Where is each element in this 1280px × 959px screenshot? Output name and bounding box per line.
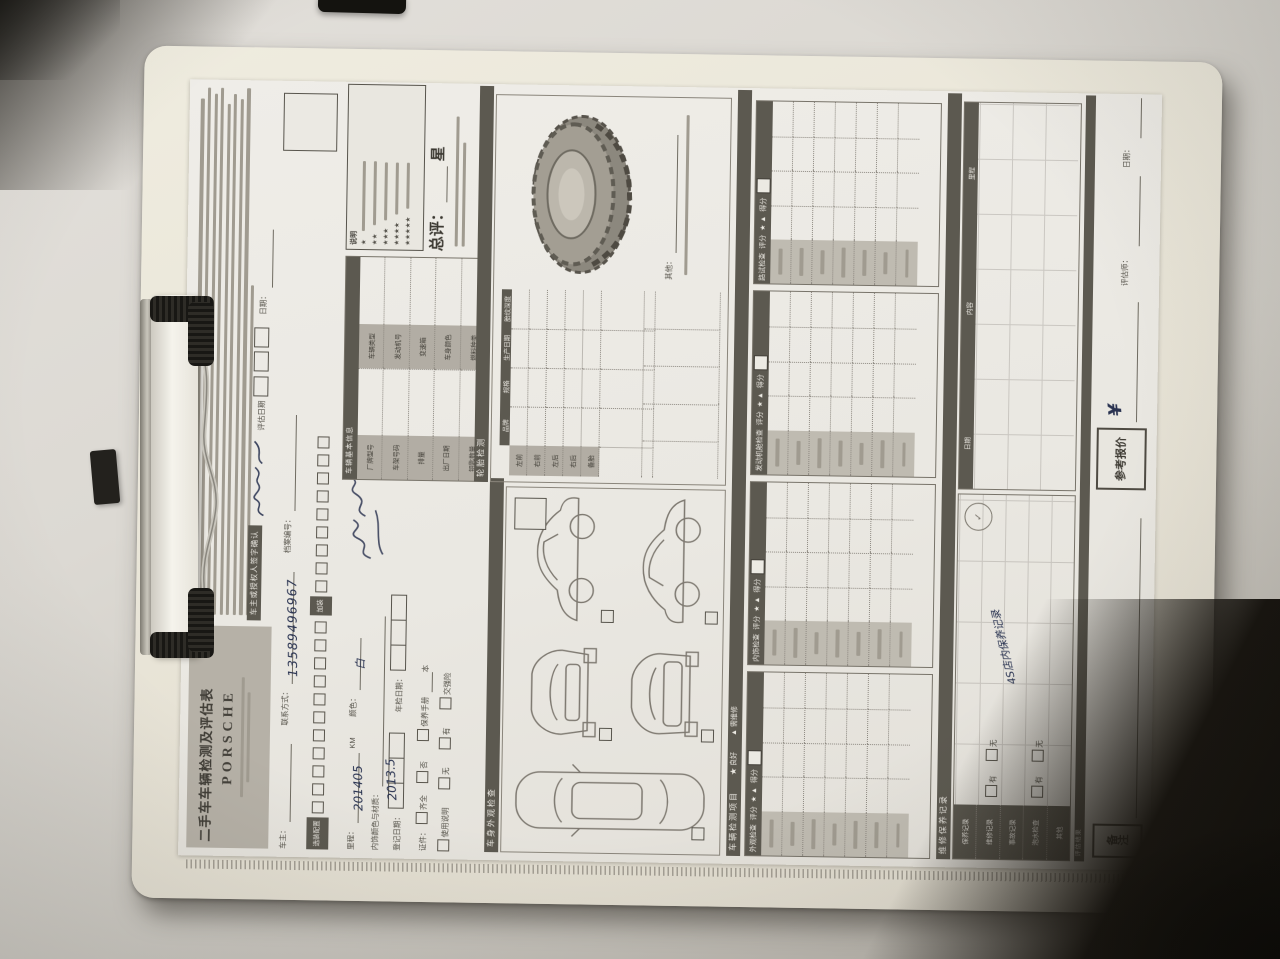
insurance-label: 交强险 (443, 672, 452, 695)
manual-label: 保养手册 (420, 697, 429, 727)
basic-label: 车身颜色 (435, 325, 461, 369)
inspection-table: 发动机舱检查 评分★ ▲ 得分 (750, 291, 939, 478)
signature-handwriting (247, 435, 270, 521)
brand-subline (240, 677, 245, 797)
assessor-field (1130, 176, 1141, 246)
color-field: 白 (351, 638, 362, 690)
handwritten-scrawl (331, 474, 390, 567)
car-rear-view (619, 641, 709, 746)
car-front-view (517, 640, 607, 745)
basic-info-table: 车辆基本信息 厂牌型号 车辆类型 车架号码 发动机号 排量 变速箱 出厂日期 车… (342, 256, 490, 482)
contact-label: 联系方式： (280, 688, 290, 726)
manual-checkbox (417, 729, 429, 741)
assessor-label: 评估师： (1119, 256, 1130, 286)
book-checkbox (437, 839, 449, 851)
view-code-box-right (705, 611, 718, 624)
tire-row: 右后 (563, 446, 581, 476)
mileage-unit: KM (348, 737, 357, 748)
manual-unit: 本 (421, 665, 430, 673)
body-diagram-area (500, 486, 726, 855)
options-label: 选装配置 (306, 817, 328, 849)
inspection-section-title: 路试检查 (757, 253, 767, 281)
desk-shadow-corner2 (1080, 829, 1280, 959)
eval-date-label: 评估日期 (257, 400, 266, 430)
footer-date-field (1131, 98, 1142, 138)
porsche-logo: PORSCHE (219, 626, 238, 848)
docs-full-label: 齐全 (419, 795, 428, 810)
black-object-top-edge (318, 0, 406, 14)
option-checkbox (312, 801, 324, 813)
page-title: 二手车车辆检测及评估表 (186, 625, 218, 847)
basic-label: 车辆类型 (359, 324, 385, 368)
legend-bad: ▲ 需维修 (728, 706, 742, 736)
tire-row: 右前 (527, 446, 545, 476)
docs-full-checkbox (415, 812, 427, 824)
basic-label: 发动机号 (384, 324, 410, 368)
inspection-table: 路试检查 评分★ ▲ 得分 (753, 100, 942, 287)
clip-grip-bottom (150, 588, 214, 658)
tire-other-row: 其他： (658, 110, 693, 280)
car-side-right-view (621, 493, 715, 628)
have-label: 有 (442, 727, 451, 735)
basic-label: 车架号码 (382, 435, 408, 479)
score-box (751, 560, 765, 575)
owner-label: 车主： (278, 826, 287, 849)
contact-field: 13589496967 (283, 571, 295, 683)
quote-box: 参考报价 (1096, 428, 1147, 491)
brand-subline2 (246, 692, 251, 782)
records-grid-col: 里程 (965, 129, 976, 219)
header-empty-box (283, 93, 338, 152)
overall-unit: 星 (430, 146, 447, 161)
owner-field (281, 744, 292, 822)
signature-bar-label: 车主或授权人签字确认 (247, 525, 262, 620)
legend-good: ★ 良好 (727, 752, 741, 775)
basic-label: 排量 (408, 436, 434, 480)
tire-other-label: 其他： (664, 257, 673, 280)
view-code-box-rear (701, 729, 714, 742)
form-header-block: 二手车车辆检测及评估表 PORSCHE (186, 625, 271, 848)
tire-table: 品牌 规格 生产日期 胎纹深度 左前 右前 左后 右后 备胎 (499, 289, 656, 477)
mileage-field: 201405 (349, 753, 360, 823)
mileage-handwriting: 201405 (351, 765, 366, 811)
binder-clip (90, 449, 121, 505)
inspection-bar-title: 车辆检测项目 (726, 791, 741, 851)
tire-row: 备胎 (581, 446, 599, 476)
tire-col: 规格 (500, 367, 511, 406)
docs-label: 证件： (418, 828, 427, 851)
diagram-legend-box (514, 497, 546, 529)
basic-label: 出厂日期 (433, 436, 459, 480)
basic-label: 变速箱 (409, 325, 435, 369)
color-handwriting: 白 (354, 658, 367, 669)
view-code-box-front (599, 728, 612, 741)
footer-date-label: 日期： (1121, 145, 1132, 168)
eval-date-box (253, 376, 268, 396)
score-box (748, 750, 762, 765)
eval-date-box (254, 327, 269, 347)
file-number-field (285, 415, 297, 511)
tire-row: 左后 (545, 446, 563, 476)
none-label: 无 (441, 767, 450, 775)
none-checkbox (438, 777, 450, 789)
tire-row: 左前 (509, 445, 527, 475)
options-label2: 加装 (310, 596, 332, 615)
mileage-label: 里程： (346, 827, 355, 850)
inspection-section-title: 外观检查 (748, 824, 758, 852)
insp-date-boxes (390, 594, 407, 670)
insp-date-label: 年检日期： (394, 675, 404, 713)
reg-date-handwriting: 2013.5 (383, 758, 399, 801)
have-checkbox (439, 737, 451, 749)
reg-date-label: 登记日期： (392, 813, 402, 851)
basic-label: 厂牌型号 (357, 435, 383, 479)
tire-section-area: 品牌 规格 生产日期 胎纹深度 左前 右前 左后 右后 备胎 (490, 94, 732, 486)
interior-label: 内饰颜色与材质： (370, 790, 380, 850)
reg-date-boxes: 2013.5 (388, 733, 405, 809)
view-code-box-left (601, 610, 614, 623)
file-number-label: 档案编号： (283, 516, 293, 554)
eval-date-box (253, 352, 268, 372)
records-grid-box: 日期 内容 里程 (958, 101, 1082, 491)
docs-no-checkbox (416, 771, 428, 783)
inspection-section-title: 发动机舱检查 (754, 429, 765, 471)
tire-col: 品牌 (500, 406, 511, 445)
overall-label: 总评： (429, 206, 447, 251)
owner-row: 车主： 联系方式： 13589496967 档案编号： (272, 159, 307, 849)
phone-handwriting: 13589496967 (284, 578, 300, 677)
clip-grip-top (150, 296, 214, 366)
records-grid-col: 日期 (961, 398, 972, 488)
insurance-checkbox (439, 697, 451, 709)
inspection-section-title: 内饰检查 (751, 634, 761, 662)
color-label: 颜色： (348, 694, 357, 717)
docs-no-label: 否 (419, 761, 428, 769)
view-code-box-top (691, 827, 704, 840)
records-grid-col: 内容 (962, 218, 975, 398)
tire-extra-grid (641, 291, 721, 478)
desk-shadow-corner (0, 0, 120, 80)
tire-col: 生产日期 (501, 328, 512, 367)
header-date-label: 日期： (259, 292, 268, 315)
book-label: 使用说明 (440, 807, 449, 837)
rating-legend-box: 说明 ★ ★★ ★★★ ★★★★ ★★★★★ (346, 84, 427, 251)
yen-handwriting: ¥ (1105, 402, 1127, 416)
quote-field (1127, 302, 1139, 422)
photo-scene: 二手车车辆检测及评估表 PORSCHE 车主或授权人签字确认 (0, 0, 1280, 959)
score-box (757, 179, 771, 194)
score-box (754, 355, 768, 370)
tire-col: 胎纹深度 (501, 289, 512, 328)
car-top-view (509, 757, 710, 844)
tire-illustration (516, 109, 647, 279)
